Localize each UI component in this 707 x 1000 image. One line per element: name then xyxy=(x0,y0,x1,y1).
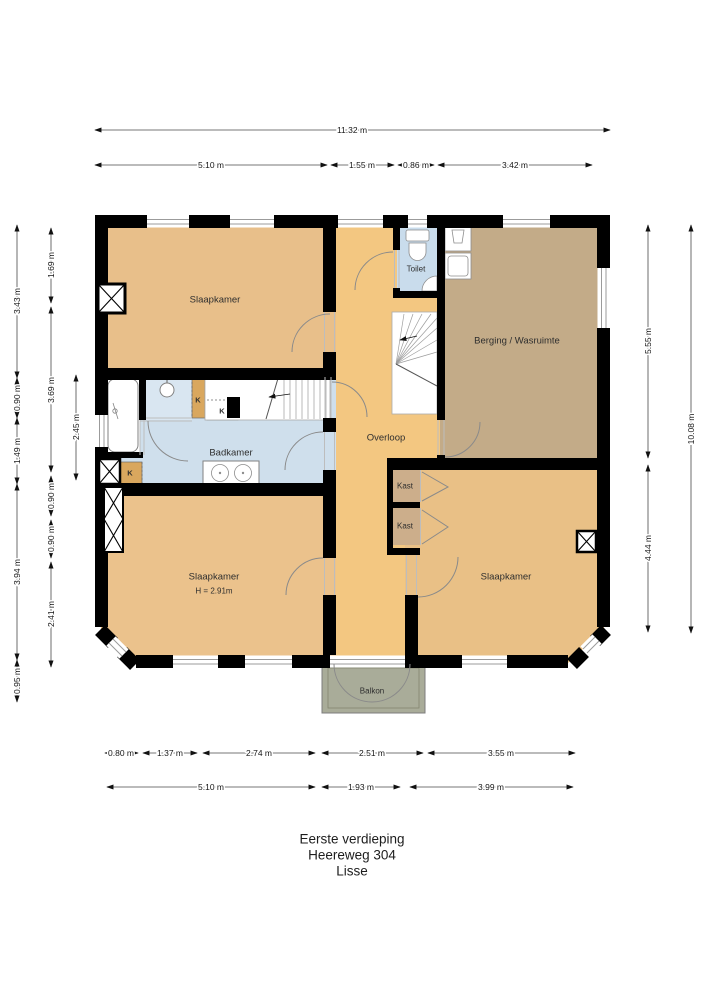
floorplan-drawing: Slaapkamer Badkamer Toilet Overloop Berg… xyxy=(0,0,707,1000)
balkon-threshold xyxy=(330,656,405,668)
dim-top-1: 1.55 m xyxy=(349,160,375,170)
dim-b-1: 1.93 m xyxy=(348,782,374,792)
shaft-x xyxy=(577,531,596,552)
bathtub xyxy=(108,379,138,452)
staircase-middle xyxy=(392,312,437,414)
dim-b-0: 5.10 m xyxy=(198,782,224,792)
dim-bd-3: 2.51 m xyxy=(359,748,385,758)
dim-b-2: 3.99 m xyxy=(478,782,504,792)
window xyxy=(245,656,292,668)
label-berging: Berging / Wasruimte xyxy=(474,336,560,347)
label-kast2: Kast xyxy=(397,522,414,531)
dim-bd-4: 3.55 m xyxy=(488,748,514,758)
title-line3: Lisse xyxy=(336,864,368,879)
window xyxy=(338,216,383,228)
dim-right-total: 10.08 m xyxy=(686,414,696,445)
label-badkamer: Badkamer xyxy=(209,448,252,459)
window xyxy=(462,656,507,668)
window xyxy=(173,656,218,668)
dim-lo-1: 0.90 m xyxy=(12,385,22,411)
label-slaapkamer-rechts: Slaapkamer xyxy=(481,572,532,583)
dim-li-0: 1.69 m xyxy=(46,252,56,278)
berging-sink xyxy=(445,224,471,251)
dim-li-4: 2.41 m xyxy=(46,601,56,627)
dim-li-2: 0.90 m xyxy=(46,483,56,509)
label-slaapkamer-links: Slaapkamer xyxy=(189,572,240,583)
label-overloop: Overloop xyxy=(367,433,406,444)
dim-top-0: 5.10 m xyxy=(198,160,224,170)
label-balkon: Balkon xyxy=(360,687,384,696)
label-toilet: Toilet xyxy=(407,265,426,274)
dim-lo-4: 0.95 m xyxy=(12,668,22,694)
window xyxy=(408,216,427,228)
window xyxy=(598,268,610,328)
dim-bd-2: 2.74 m xyxy=(246,748,272,758)
floorplan-page: Slaapkamer Badkamer Toilet Overloop Berg… xyxy=(0,0,707,1000)
dim-lo-0: 3.43 m xyxy=(12,288,22,314)
shower-head xyxy=(160,383,174,397)
chimney xyxy=(104,487,123,552)
dim-bd-1: 1.37 m xyxy=(157,748,183,758)
window xyxy=(96,415,108,447)
window xyxy=(230,216,274,228)
dim-top-3: 3.42 m xyxy=(502,160,528,170)
window xyxy=(147,216,189,228)
window xyxy=(503,216,550,228)
dim-li2: 2.45 m xyxy=(71,414,81,440)
title-line2: Heereweg 304 xyxy=(308,848,396,863)
dim-top-2: 0.86 m xyxy=(403,160,429,170)
label-k1: K xyxy=(195,396,201,405)
dim-lo-3: 3.94 m xyxy=(12,559,22,585)
dim-ri-0: 5.55 m xyxy=(643,328,653,354)
label-kast1: Kast xyxy=(397,482,414,491)
title-line1: Eerste verdieping xyxy=(299,832,404,847)
room-fills xyxy=(101,221,604,664)
dim-bd-0: 0.80 m xyxy=(108,748,134,758)
label-k3: K xyxy=(127,469,133,478)
dim-li-3: 0.90 m xyxy=(46,526,56,552)
double-sink xyxy=(203,461,259,485)
label-slaapkamer-links-hoogte: H = 2.91m xyxy=(195,587,232,596)
plan-title: Eerste verdieping Heereweg 304 Lisse xyxy=(299,832,404,879)
dim-li-1: 3.69 m xyxy=(46,377,56,403)
shaft-x xyxy=(99,459,120,484)
washing-machine xyxy=(445,253,471,279)
label-slaapkamer-top: Slaapkamer xyxy=(190,295,241,306)
label-k2: K xyxy=(219,407,225,416)
dim-lo-2: 1.49 m xyxy=(12,438,22,464)
dim-top-total: 11.32 m xyxy=(337,125,367,135)
dim-ri-1: 4.44 m xyxy=(643,535,653,561)
shaft-x xyxy=(98,284,125,313)
